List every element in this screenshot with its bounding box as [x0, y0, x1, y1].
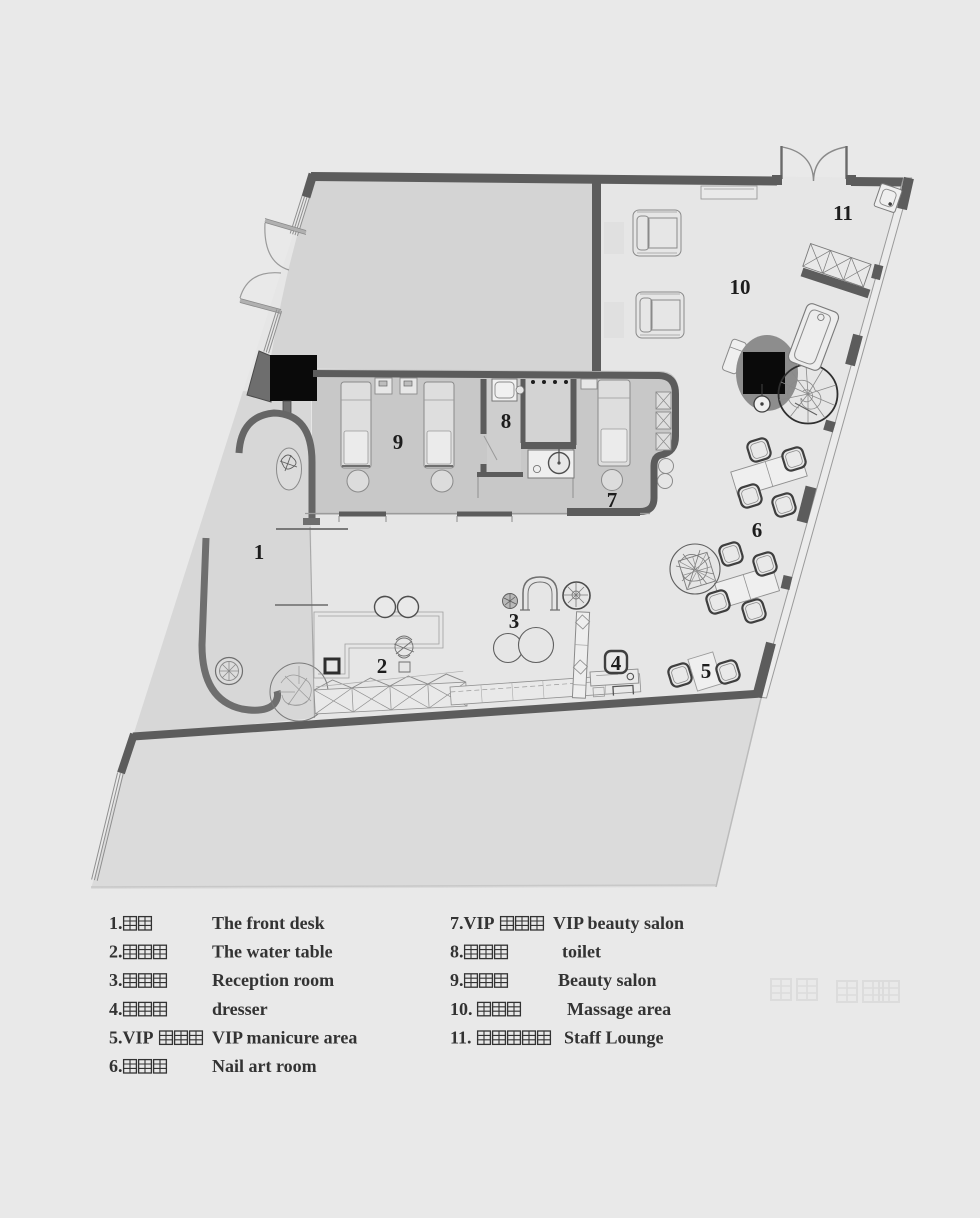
svg-text:VIP manicure area: VIP manicure area — [212, 1027, 357, 1047]
svg-text:1: 1 — [254, 540, 265, 564]
svg-text:Reception room: Reception room — [212, 970, 334, 990]
svg-text:Beauty salon: Beauty salon — [558, 970, 657, 990]
svg-text:dresser: dresser — [212, 999, 268, 1019]
svg-text:4.: 4. — [109, 999, 123, 1019]
svg-text:2.: 2. — [109, 942, 123, 962]
svg-text:Nail art room: Nail art room — [212, 1056, 317, 1076]
svg-text:6: 6 — [752, 518, 763, 542]
svg-text:8: 8 — [501, 409, 512, 433]
svg-text:7: 7 — [607, 488, 618, 512]
svg-text:toilet: toilet — [562, 942, 601, 962]
svg-text:4: 4 — [611, 651, 622, 675]
svg-text:9: 9 — [393, 430, 404, 454]
svg-text:3: 3 — [509, 609, 520, 633]
svg-text:5: 5 — [701, 659, 712, 683]
svg-text:9.: 9. — [450, 970, 464, 990]
svg-text:5.VIP: 5.VIP — [109, 1027, 154, 1047]
svg-text:2: 2 — [377, 654, 388, 678]
svg-text:VIP beauty salon: VIP beauty salon — [553, 913, 684, 933]
svg-text:10.: 10. — [450, 999, 473, 1019]
svg-text:8.: 8. — [450, 942, 464, 962]
svg-text:6.: 6. — [109, 1056, 123, 1076]
svg-text:11.: 11. — [450, 1027, 472, 1047]
svg-text:10: 10 — [730, 275, 751, 299]
svg-text:3.: 3. — [109, 970, 123, 990]
svg-text:11: 11 — [833, 201, 853, 225]
svg-text:Massage area: Massage area — [567, 999, 671, 1019]
svg-text:1.: 1. — [109, 913, 123, 933]
svg-text:The front desk: The front desk — [212, 913, 325, 933]
svg-text:7.VIP: 7.VIP — [450, 913, 495, 933]
svg-text:The water table: The water table — [212, 942, 333, 962]
svg-text:Staff Lounge: Staff Lounge — [564, 1027, 664, 1047]
